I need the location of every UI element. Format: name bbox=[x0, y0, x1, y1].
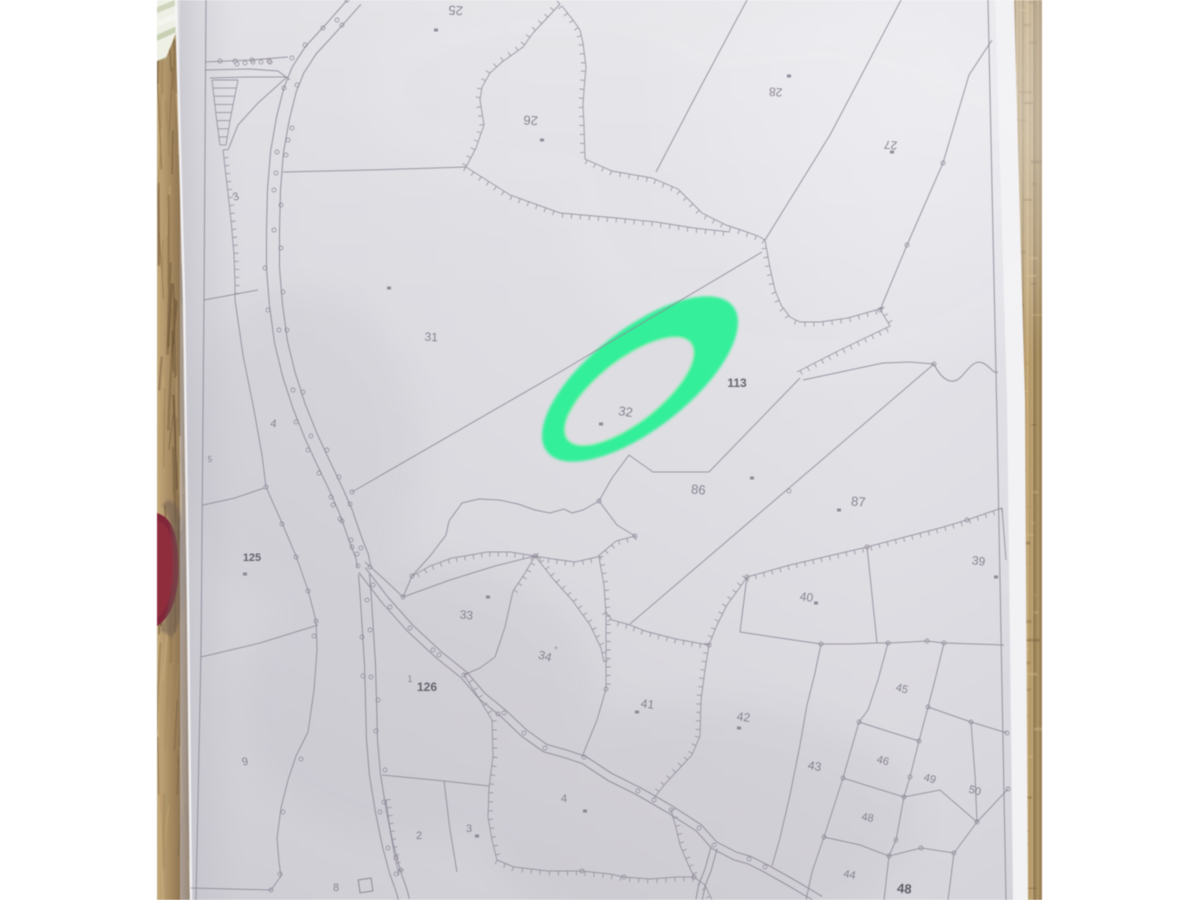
svg-text:44: 44 bbox=[842, 868, 856, 882]
svg-text:40: 40 bbox=[799, 589, 814, 605]
svg-text:113: 113 bbox=[727, 376, 747, 390]
svg-text:42: 42 bbox=[736, 709, 751, 725]
svg-text:28: 28 bbox=[768, 85, 783, 100]
svg-text:32: 32 bbox=[617, 403, 633, 420]
svg-text:8: 8 bbox=[333, 882, 339, 894]
svg-text:°: ° bbox=[554, 645, 558, 655]
svg-text:1: 1 bbox=[407, 674, 412, 684]
svg-text:48: 48 bbox=[860, 811, 874, 825]
svg-text:48: 48 bbox=[897, 880, 913, 896]
svg-text:39: 39 bbox=[971, 553, 986, 569]
svg-text:31: 31 bbox=[424, 330, 438, 345]
svg-text:2: 2 bbox=[416, 830, 422, 842]
svg-text:41: 41 bbox=[640, 696, 655, 712]
svg-text:26: 26 bbox=[523, 113, 538, 129]
svg-text:87: 87 bbox=[851, 493, 867, 509]
svg-text:33: 33 bbox=[459, 607, 474, 622]
svg-text:25: 25 bbox=[448, 3, 463, 19]
svg-text:5: 5 bbox=[208, 455, 213, 464]
svg-text:3: 3 bbox=[466, 823, 472, 835]
svg-text:86: 86 bbox=[691, 481, 707, 497]
svg-text:27: 27 bbox=[883, 137, 898, 152]
svg-text:4: 4 bbox=[561, 793, 567, 805]
svg-text:126: 126 bbox=[417, 680, 437, 694]
svg-text:125: 125 bbox=[243, 552, 261, 564]
svg-text:43: 43 bbox=[807, 758, 823, 774]
